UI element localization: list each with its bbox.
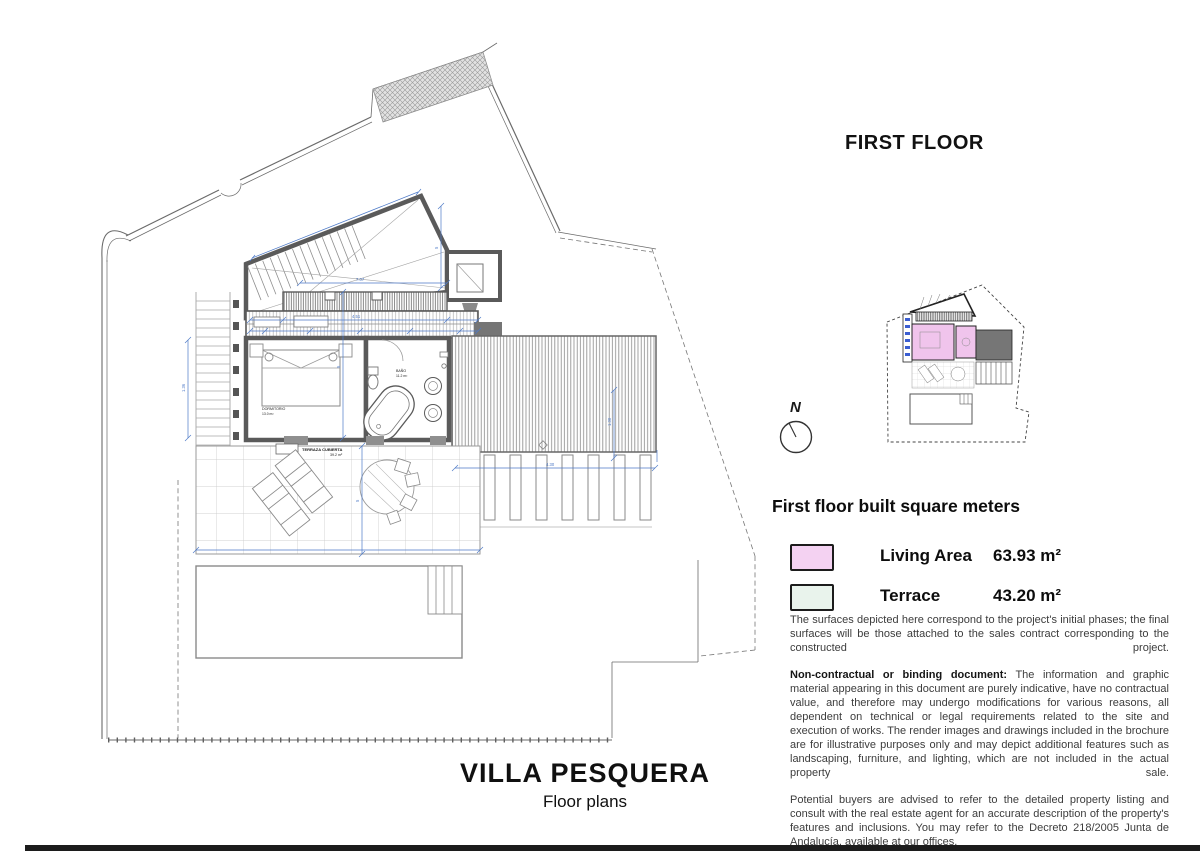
- legend-title: First floor built square meters: [772, 496, 1172, 517]
- svg-text:1.36: 1.36: [181, 383, 186, 392]
- compass-needle: [789, 423, 796, 437]
- svg-text:4.30: 4.30: [546, 462, 555, 467]
- svg-text:4.51: 4.51: [352, 314, 361, 319]
- driveway-hatch: [373, 52, 493, 122]
- disclaimer-block: The surfaces depicted here correspond to…: [790, 614, 1169, 850]
- page-title: FIRST FLOOR: [845, 132, 984, 155]
- pool: [196, 566, 462, 658]
- bedroom: DORMITORIO 13.0 m²: [246, 338, 366, 440]
- disclaimer-paragraph-3: Potential buyers are advised to refer to…: [790, 794, 1169, 850]
- legend-row-living-area: Living Area 63.93 m²: [772, 542, 1172, 576]
- bedroom-label: DORMITORIO: [262, 407, 285, 411]
- bath-area: 11.2 m²: [396, 374, 408, 378]
- mini-location-plan: [872, 282, 1072, 467]
- bath-label: BAÑO: [396, 368, 406, 373]
- svg-text:7.07: 7.07: [356, 277, 365, 282]
- bathroom: BAÑO 11.2 m²: [357, 338, 449, 447]
- compass-north-label: N: [790, 399, 802, 416]
- terrace-swatch: [790, 584, 834, 611]
- disclaimer-bold-lead: Non-contractual or binding document:: [790, 669, 1007, 681]
- pergola: [452, 336, 656, 527]
- villa-title: VILLA PESQUERA: [410, 758, 760, 789]
- living-area-swatch: [790, 544, 834, 571]
- footer-title-block: VILLA PESQUERA Floor plans: [410, 758, 760, 812]
- north-compass: N: [766, 396, 828, 460]
- villa-subtitle: Floor plans: [410, 792, 760, 812]
- bottom-accent-bar: [25, 845, 1200, 851]
- legend: First floor built square meters Living A…: [772, 496, 1172, 626]
- living-area-label: Living Area: [880, 546, 972, 566]
- svg-text:1.30: 1.30: [607, 417, 612, 426]
- legend-row-terrace: Terrace 43.20 m²: [772, 582, 1172, 616]
- disclaimer-paragraph-2: Non-contractual or binding document: The…: [790, 669, 1169, 781]
- terrace-label: Terrace: [880, 586, 940, 606]
- terrace: TERRAZA CUBIERTA 39.2 m²: [196, 444, 480, 554]
- main-floor-plan-drawing: DORMITORIO 13.0 m² BAÑO 11.2 m²: [0, 0, 770, 820]
- bedroom-area: 13.0 m²: [262, 412, 274, 416]
- disclaimer-paragraph-1: The surfaces depicted here correspond to…: [790, 614, 1169, 656]
- terrace-label: TERRAZA CUBIERTA: [302, 447, 343, 452]
- page: DORMITORIO 13.0 m² BAÑO 11.2 m²: [0, 0, 1200, 851]
- disclaimer-paragraph-2-rest: The information and graphic material app…: [790, 669, 1169, 779]
- terrace-area: 39.2 m²: [330, 453, 343, 457]
- living-area-value: 63.93 m²: [993, 546, 1061, 566]
- terrace-value: 43.20 m²: [993, 586, 1061, 606]
